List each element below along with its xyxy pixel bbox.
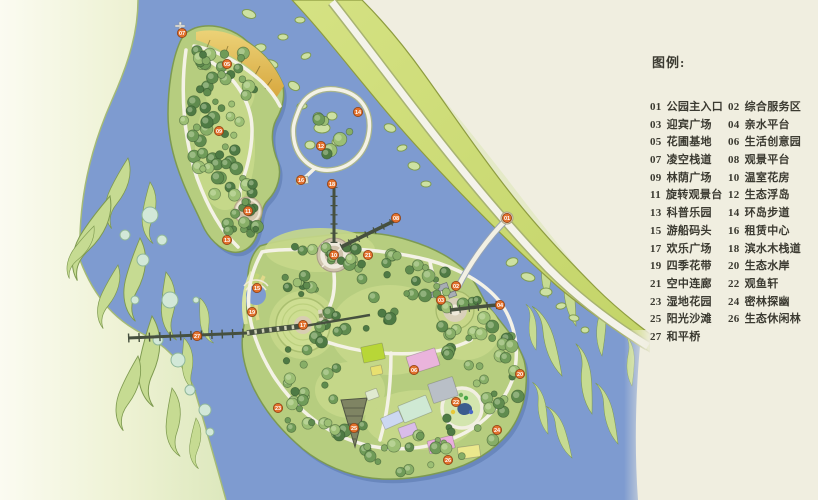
- map-marker: 27: [192, 331, 201, 340]
- legend-item-number: 25: [650, 313, 662, 325]
- legend-item: 25阳光沙滩: [650, 311, 728, 329]
- legend-item-number: 02: [728, 101, 740, 113]
- legend-item-number: 12: [728, 189, 740, 201]
- legend-item: 22观鱼轩: [728, 276, 812, 294]
- map-marker: 01: [502, 213, 511, 222]
- legend-item-label: 生态浮岛: [745, 189, 790, 201]
- legend-item-label: 迎宾广场: [667, 119, 712, 131]
- legend-item-label: 旋转观景台: [666, 189, 723, 201]
- legend-item-label: 公园主入口: [667, 101, 724, 113]
- map-marker: 26: [443, 455, 452, 464]
- legend-item: 18滨水木栈道: [728, 241, 812, 259]
- legend-item-label: 环岛步道: [745, 207, 790, 219]
- legend-item-number: 06: [728, 136, 740, 148]
- legend-item-label: 湿地花园: [667, 296, 712, 308]
- map-marker-number: 23: [275, 406, 281, 412]
- map-marker: 16: [296, 175, 305, 184]
- legend-item: 16租赁中心: [728, 223, 812, 241]
- legend-item-number: 23: [650, 296, 662, 308]
- legend-item-label: 四季花带: [667, 260, 712, 272]
- map-marker-number: 11: [245, 209, 251, 215]
- legend-item: 21空中连廊: [650, 276, 728, 294]
- legend-item: 17欢乐广场: [650, 241, 728, 259]
- legend-item: 12生态浮岛: [728, 187, 812, 205]
- map-marker-number: 02: [453, 284, 459, 290]
- map-marker: 23: [273, 403, 282, 412]
- water-fade: [624, 330, 650, 500]
- legend-item-label: 欢乐广场: [667, 243, 712, 255]
- map-marker-number: 14: [355, 110, 362, 116]
- map-marker: 02: [451, 281, 460, 290]
- map-svg: 0705091113141216180810210102030415191727…: [0, 0, 650, 500]
- legend-item-number: 03: [650, 119, 662, 131]
- legend-item-label: 阳光沙滩: [667, 313, 712, 325]
- legend-item-number: 26: [728, 313, 740, 325]
- map-marker: 12: [316, 141, 325, 150]
- legend-item: 13科普乐园: [650, 205, 728, 223]
- legend-item: 03迎宾广场: [650, 117, 728, 135]
- legend-item: 07凌空栈道: [650, 152, 728, 170]
- map-marker: 18: [327, 179, 336, 188]
- map-marker-number: 07: [179, 31, 185, 37]
- park-plan-page: 0705091113141216180810210102030415191727…: [0, 0, 818, 500]
- legend-item-number: 17: [650, 243, 662, 255]
- map-marker-number: 06: [411, 368, 417, 374]
- legend-item-number: 22: [728, 278, 740, 290]
- legend-item-number: 09: [650, 172, 662, 184]
- legend-item-number: 11: [650, 189, 661, 201]
- legend-item-number: 18: [728, 243, 740, 255]
- legend-item: 15游船码头: [650, 223, 728, 241]
- legend-item-number: 13: [650, 207, 662, 219]
- legend-item-label: 滨水木栈道: [745, 243, 802, 255]
- map-marker-number: 01: [504, 216, 510, 222]
- map-marker: 07: [177, 28, 186, 37]
- map-marker-number: 19: [249, 310, 255, 316]
- map-marker: 24: [492, 425, 501, 434]
- legend-item-number: 04: [728, 119, 740, 131]
- legend-list: 01公园主入口02综合服务区03迎宾广场04亲水平台05花圃基地06生活创意园0…: [650, 99, 812, 347]
- map-marker-number: 13: [224, 238, 230, 244]
- legend-item-number: 24: [728, 296, 740, 308]
- map-marker: 10: [329, 250, 338, 259]
- map-marker-number: 12: [318, 144, 324, 150]
- map-marker-number: 05: [224, 62, 230, 68]
- map-marker: 05: [222, 59, 231, 68]
- legend-item-label: 生活创意园: [745, 136, 802, 148]
- legend-item: 10温室花房: [728, 170, 812, 188]
- map-marker-number: 21: [365, 253, 371, 259]
- map-marker: 17: [298, 320, 307, 329]
- map-marker-number: 18: [329, 182, 335, 188]
- map-marker: 15: [252, 283, 261, 292]
- map-marker-number: 16: [298, 178, 304, 184]
- map-marker-number: 25: [351, 426, 357, 432]
- legend-item-label: 凌空栈道: [667, 154, 712, 166]
- map-marker: 25: [349, 423, 358, 432]
- legend-item: 26生态休闲林: [728, 311, 812, 329]
- legend-item-label: 花圃基地: [667, 136, 712, 148]
- legend-item-label: 生态休闲林: [745, 313, 802, 325]
- park-master-plan-map: 0705091113141216180810210102030415191727…: [0, 0, 650, 500]
- map-marker: 09: [214, 126, 223, 135]
- map-marker-number: 04: [497, 303, 504, 309]
- legend-item-label: 和平桥: [667, 331, 701, 343]
- map-marker: 20: [515, 369, 524, 378]
- map-marker: 03: [436, 295, 445, 304]
- legend-item: 01公园主入口: [650, 99, 728, 117]
- legend-item-number: 20: [728, 260, 740, 272]
- map-marker: 21: [363, 250, 372, 259]
- legend-item: 09林荫广场: [650, 170, 728, 188]
- map-marker-number: 27: [194, 334, 200, 340]
- legend-item-number: 10: [728, 172, 740, 184]
- legend-item-number: 01: [650, 101, 662, 113]
- legend-item-number: 27: [650, 331, 662, 343]
- legend-title: 图例:: [652, 52, 812, 71]
- legend-item-label: 亲水平台: [745, 119, 790, 131]
- legend-item-label: 观鱼轩: [745, 278, 779, 290]
- legend-item-number: 08: [728, 154, 740, 166]
- map-marker-number: 03: [438, 298, 444, 304]
- legend-item-number: 21: [650, 278, 662, 290]
- legend-item: 08观景平台: [728, 152, 812, 170]
- legend-item: 27和平桥: [650, 329, 728, 347]
- legend-item: 06生活创意园: [728, 134, 812, 152]
- map-marker: 08: [391, 213, 400, 222]
- map-marker-number: 08: [393, 216, 399, 222]
- map-marker-number: 24: [494, 428, 501, 434]
- map-marker: 06: [409, 365, 418, 374]
- legend-item-number: 15: [650, 225, 662, 237]
- legend-item: 04亲水平台: [728, 117, 812, 135]
- legend-item-number: 05: [650, 136, 662, 148]
- map-marker: 19: [247, 307, 256, 316]
- legend-item: 19四季花带: [650, 258, 728, 276]
- map-marker-number: 22: [453, 400, 459, 406]
- legend-item: 11旋转观景台: [650, 187, 728, 205]
- legend-item-label: 生态水岸: [745, 260, 790, 272]
- legend-item-label: 游船码头: [667, 225, 712, 237]
- legend-item-label: 租赁中心: [745, 225, 790, 237]
- legend-item-number: 19: [650, 260, 662, 272]
- legend-item: 23湿地花园: [650, 294, 728, 312]
- legend-item-label: 科普乐园: [667, 207, 712, 219]
- legend-item-number: 16: [728, 225, 740, 237]
- legend-item-number: 14: [728, 207, 740, 219]
- legend-panel: 图例: 01公园主入口02综合服务区03迎宾广场04亲水平台05花圃基地06生活…: [650, 52, 812, 347]
- legend-item: 24密林探幽: [728, 294, 812, 312]
- map-marker: 11: [243, 206, 252, 215]
- map-marker-number: 10: [331, 253, 337, 259]
- legend-item-number: 07: [650, 154, 662, 166]
- map-marker-number: 20: [517, 372, 523, 378]
- legend-item-label: 观景平台: [745, 154, 790, 166]
- legend-item: 14环岛步道: [728, 205, 812, 223]
- map-marker: 13: [222, 235, 231, 244]
- legend-item: 02综合服务区: [728, 99, 812, 117]
- legend-item-label: 密林探幽: [745, 296, 790, 308]
- legend-item: 20生态水岸: [728, 258, 812, 276]
- map-marker-number: 17: [300, 323, 306, 329]
- legend-item-label: 空中连廊: [667, 278, 712, 290]
- map-marker-number: 15: [254, 286, 260, 292]
- map-marker: 22: [451, 397, 460, 406]
- legend-item-label: 综合服务区: [745, 101, 802, 113]
- legend-item-label: 林荫广场: [667, 172, 712, 184]
- legend-item: 05花圃基地: [650, 134, 728, 152]
- legend-item-label: 温室花房: [745, 172, 790, 184]
- map-marker: 04: [495, 300, 504, 309]
- map-marker-number: 26: [445, 458, 451, 464]
- map-marker-number: 09: [216, 129, 222, 135]
- map-marker: 14: [353, 107, 362, 116]
